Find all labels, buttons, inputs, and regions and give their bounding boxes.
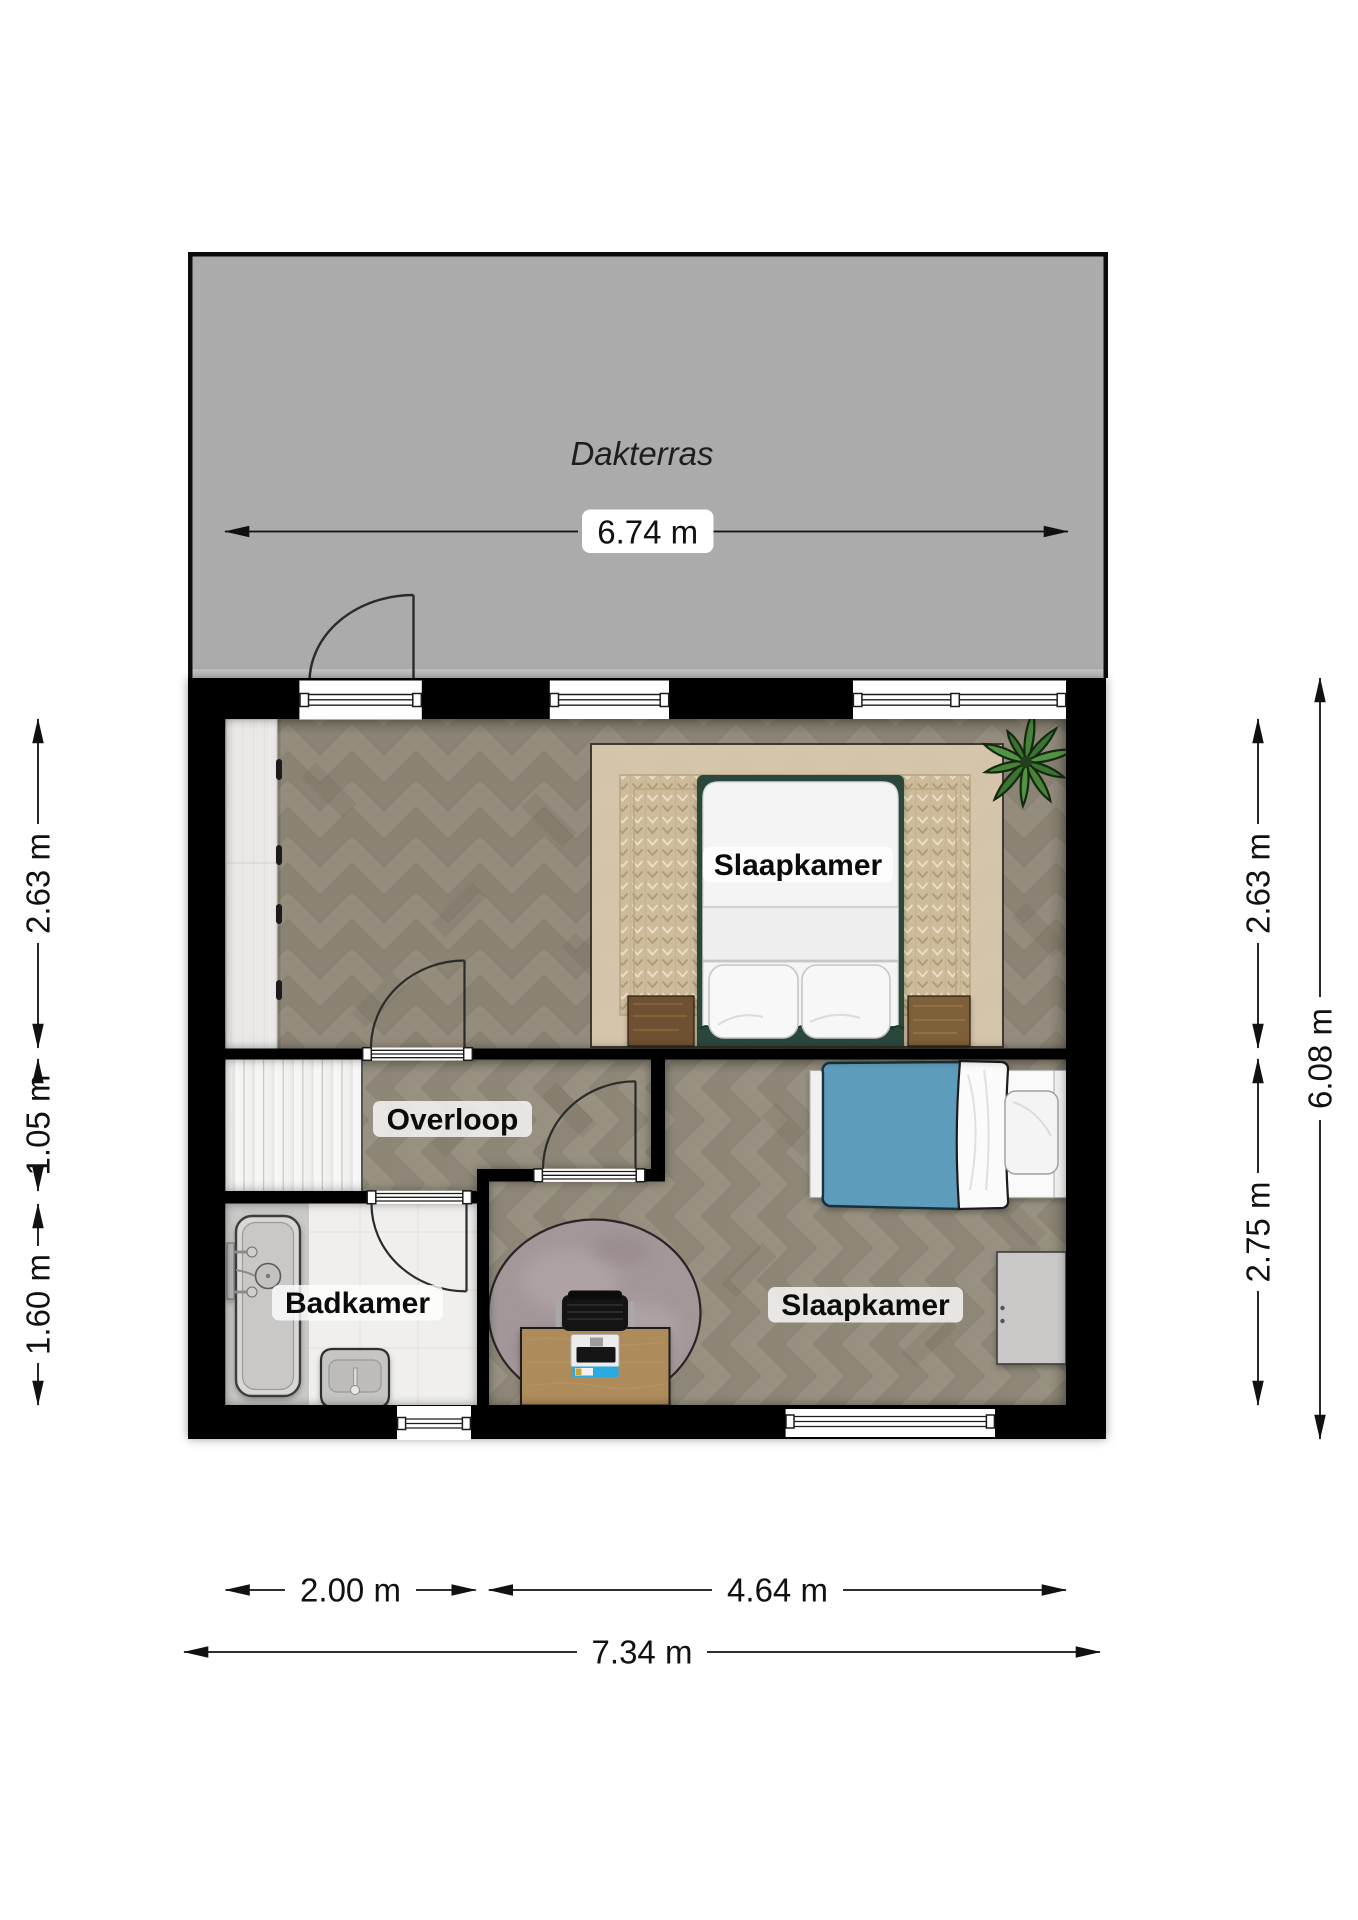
svg-text:2.63 m: 2.63 m	[20, 833, 57, 934]
svg-text:1.60 m: 1.60 m	[20, 1254, 57, 1355]
svg-text:2.63 m: 2.63 m	[1240, 833, 1277, 934]
svg-text:Slaapkamer: Slaapkamer	[714, 849, 883, 882]
svg-text:6.08 m: 6.08 m	[1302, 1008, 1339, 1109]
svg-text:Dakterras: Dakterras	[570, 435, 713, 472]
svg-text:Badkamer: Badkamer	[285, 1287, 430, 1320]
svg-text:1.05 m: 1.05 m	[20, 1075, 57, 1176]
svg-text:2.00 m: 2.00 m	[300, 1572, 401, 1609]
svg-text:2.75 m: 2.75 m	[1240, 1182, 1277, 1283]
svg-text:4.64 m: 4.64 m	[727, 1572, 828, 1609]
svg-text:Slaapkamer: Slaapkamer	[781, 1289, 950, 1322]
svg-text:6.74 m: 6.74 m	[597, 514, 698, 551]
svg-text:Overloop: Overloop	[387, 1104, 519, 1137]
svg-text:7.34 m: 7.34 m	[592, 1634, 693, 1671]
